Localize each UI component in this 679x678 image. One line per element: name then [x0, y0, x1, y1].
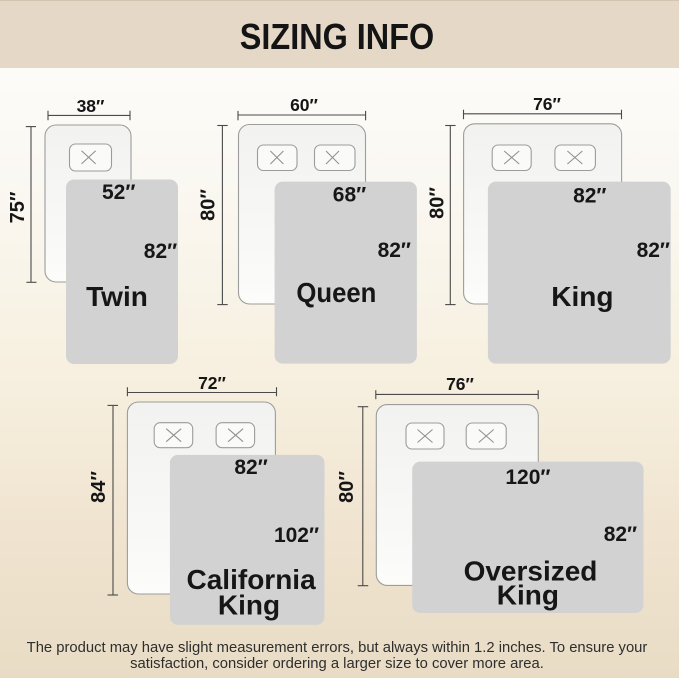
svg-text:82″: 82″	[604, 523, 637, 546]
svg-text:82″: 82″	[573, 185, 606, 208]
svg-text:82″: 82″	[637, 239, 670, 262]
svg-text:Queen: Queen	[296, 277, 376, 308]
svg-text:84″: 84″	[88, 471, 110, 503]
svg-text:120″: 120″	[505, 466, 550, 489]
svg-text:76″: 76″	[446, 374, 474, 394]
svg-text:80″: 80″	[197, 189, 219, 221]
svg-text:102″: 102″	[274, 524, 319, 547]
svg-text:82″: 82″	[144, 240, 177, 263]
svg-text:Twin: Twin	[86, 281, 148, 312]
svg-text:76″: 76″	[533, 94, 561, 114]
svg-text:68″: 68″	[333, 184, 366, 207]
svg-text:80″: 80″	[336, 471, 358, 503]
svg-text:82″: 82″	[378, 239, 411, 262]
svg-text:King: King	[551, 281, 613, 312]
svg-text:52″: 52″	[102, 181, 135, 204]
svg-text:82″: 82″	[234, 456, 267, 479]
svg-text:38″: 38″	[77, 96, 105, 116]
svg-text:75″: 75″	[7, 191, 29, 223]
svg-text:King: King	[497, 580, 559, 611]
svg-text:80″: 80″	[427, 187, 449, 219]
svg-text:60″: 60″	[290, 95, 318, 115]
svg-text:King: King	[218, 590, 280, 621]
svg-text:72″: 72″	[198, 373, 226, 393]
